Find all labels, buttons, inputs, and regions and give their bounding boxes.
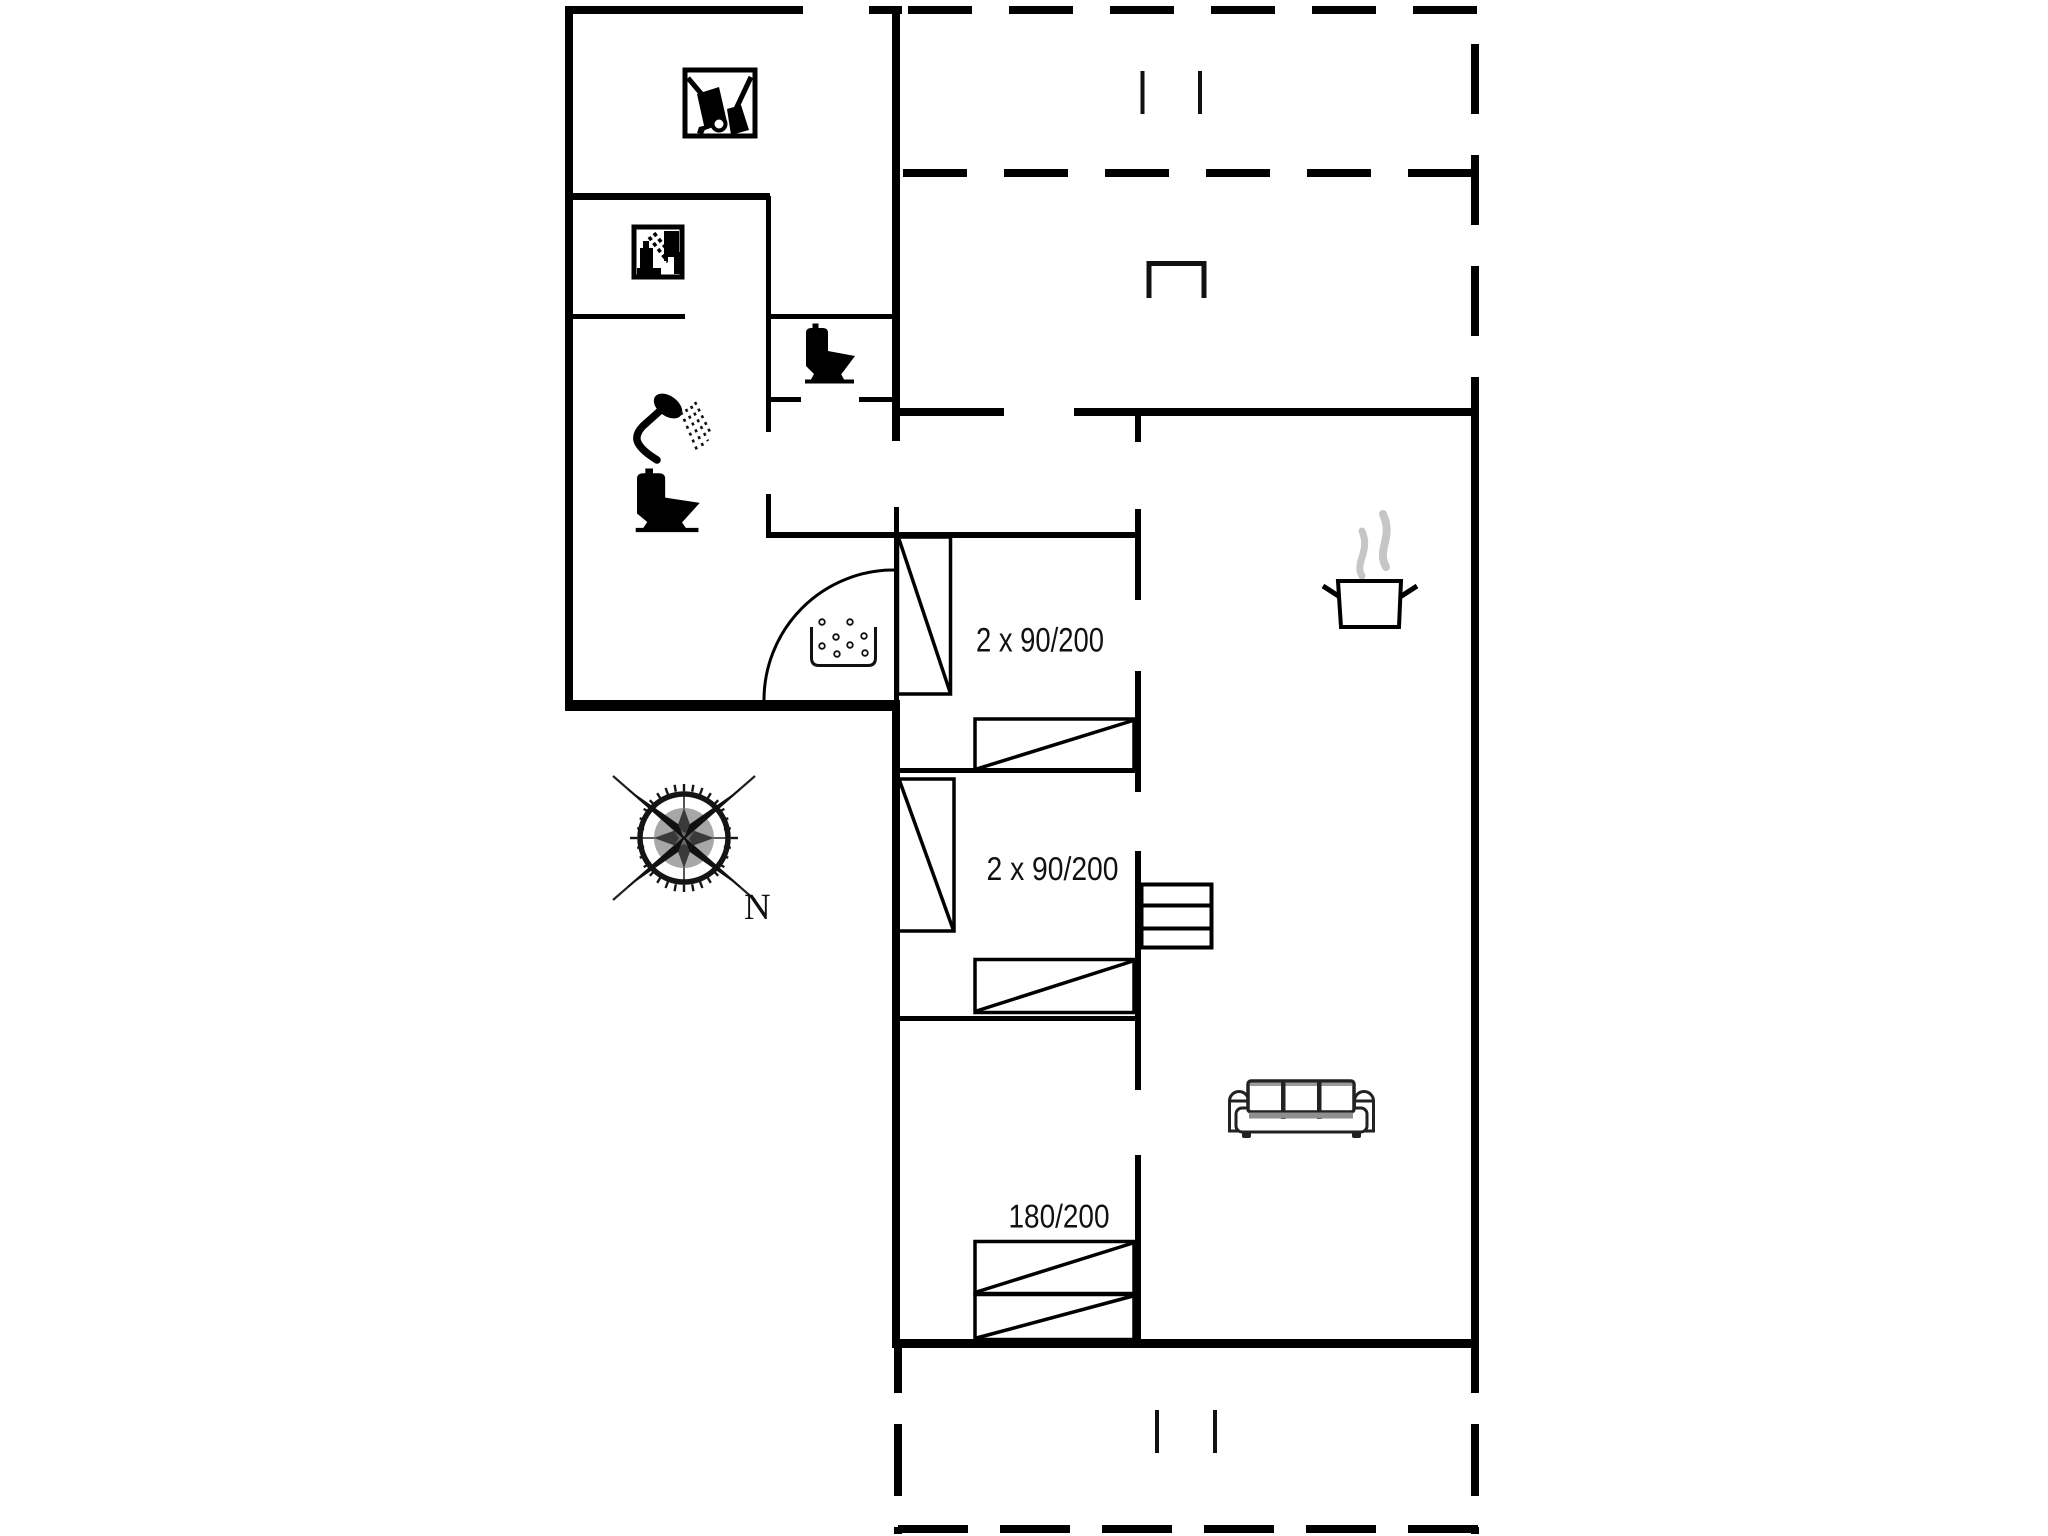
svg-text:N: N bbox=[744, 887, 771, 928]
svg-text:180/200: 180/200 bbox=[1008, 1198, 1109, 1235]
svg-text:2 x 90/200: 2 x 90/200 bbox=[986, 850, 1118, 887]
svg-text:2 x 90/200: 2 x 90/200 bbox=[976, 622, 1104, 660]
